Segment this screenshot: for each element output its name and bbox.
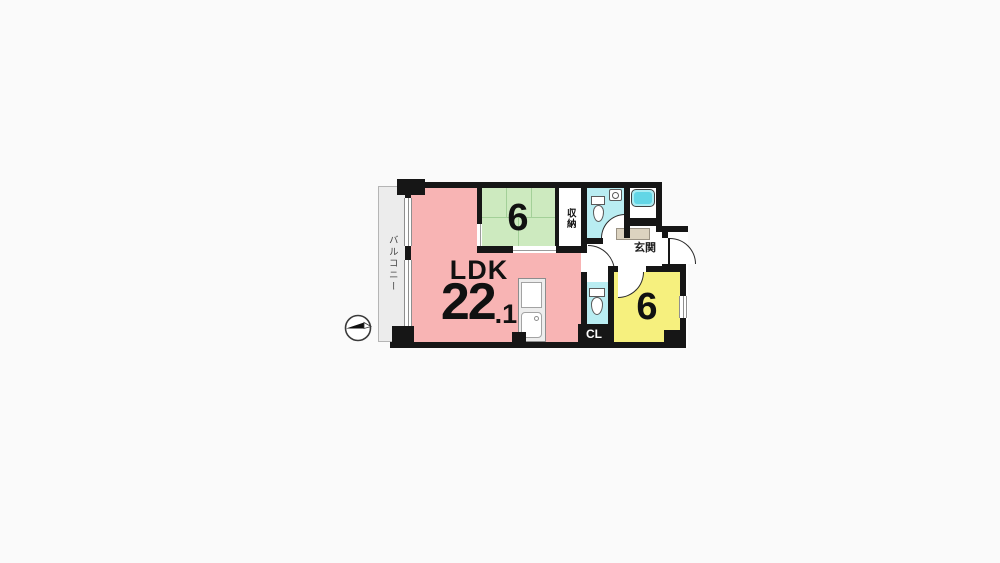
entrance-label: 玄関: [624, 241, 666, 255]
closet-cl: CL: [578, 324, 610, 344]
wall: [656, 226, 688, 232]
ldk-area: 22 .1: [426, 284, 532, 328]
ldk-area-decimal: .1: [495, 301, 518, 328]
wall: [646, 266, 686, 272]
toilet-icon: [591, 196, 605, 205]
window: [679, 296, 687, 318]
wall: [405, 182, 411, 198]
compass-icon: [341, 312, 375, 346]
balcony-label: バルコニー: [383, 222, 401, 306]
western-room-size: 6: [622, 284, 672, 330]
wall: [477, 246, 513, 253]
entrance-floor: [616, 228, 650, 240]
wall: [477, 186, 482, 224]
kitchen-faucet-icon: [534, 316, 539, 321]
wall: [397, 179, 425, 195]
storage-label: 収納: [563, 200, 577, 236]
bathtub-inner: [634, 192, 652, 204]
sliding-door: [513, 246, 556, 253]
closet-cl-label: CL: [586, 327, 602, 341]
front-door-arc: [670, 238, 696, 264]
toilet-icon: [589, 288, 605, 297]
wall: [608, 266, 618, 272]
wall: [583, 238, 603, 244]
sink-bowl-icon: [612, 192, 619, 199]
wall: [392, 326, 414, 348]
wall: [390, 342, 686, 348]
page-background: { "floor_plan": { "balcony": { "label": …: [0, 0, 1000, 563]
wall: [556, 246, 587, 253]
window: [404, 198, 412, 246]
wall: [555, 188, 559, 248]
window: [404, 260, 412, 330]
wall: [628, 218, 662, 226]
tatami-room-size: 6: [492, 196, 544, 240]
wall: [624, 188, 630, 238]
ldk-area-main: 22: [441, 276, 495, 328]
wall: [664, 330, 686, 348]
wall: [405, 246, 411, 260]
floor-plan: バルコニー 6 収納 玄関 6: [0, 0, 1000, 563]
